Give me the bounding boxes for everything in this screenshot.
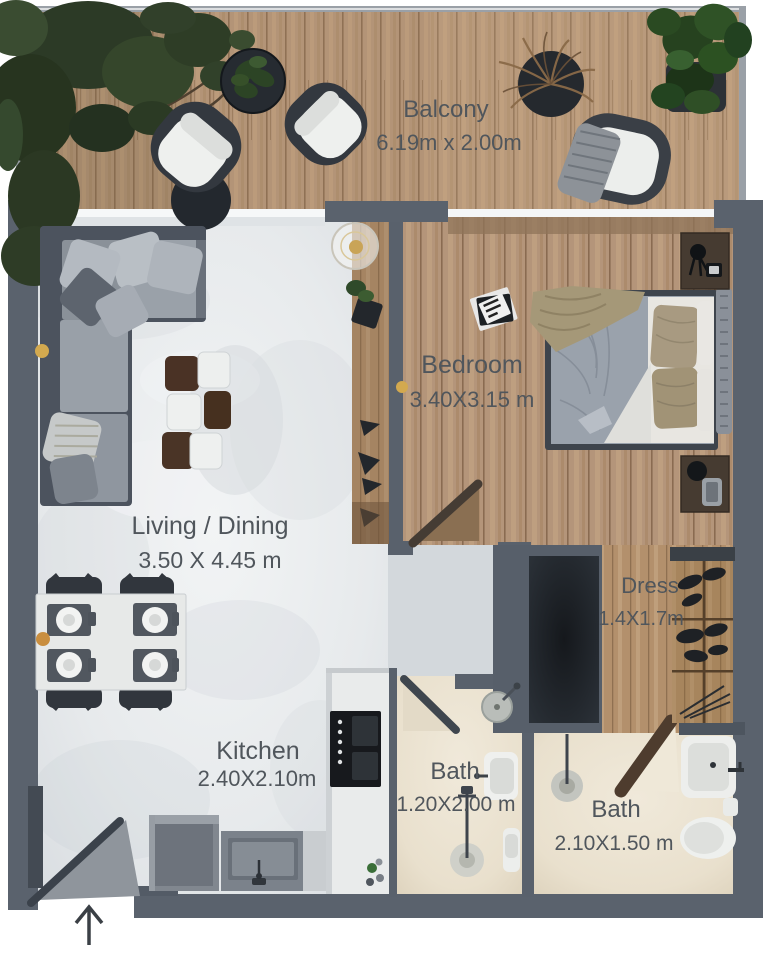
svg-text:1.20X2.00 m: 1.20X2.00 m xyxy=(396,793,515,816)
svg-text:Bath: Bath xyxy=(591,796,640,823)
svg-text:2.10X1.50 m: 2.10X1.50 m xyxy=(554,832,673,855)
svg-text:3.40X3.15 m: 3.40X3.15 m xyxy=(410,387,535,412)
svg-text:Kitchen: Kitchen xyxy=(216,737,299,765)
svg-text:2.40X2.10m: 2.40X2.10m xyxy=(198,766,317,791)
svg-text:1.4X1.7m: 1.4X1.7m xyxy=(598,608,684,630)
svg-text:Balcony: Balcony xyxy=(403,96,488,123)
svg-text:Bath: Bath xyxy=(430,758,479,785)
svg-text:Dress: Dress xyxy=(621,573,678,598)
svg-text:6.19m x 2.00m: 6.19m x 2.00m xyxy=(376,130,522,155)
svg-text:Bedroom: Bedroom xyxy=(421,351,522,379)
svg-text:Living / Dining: Living / Dining xyxy=(131,512,288,540)
svg-text:3.50 X 4.45 m: 3.50 X 4.45 m xyxy=(138,547,281,573)
